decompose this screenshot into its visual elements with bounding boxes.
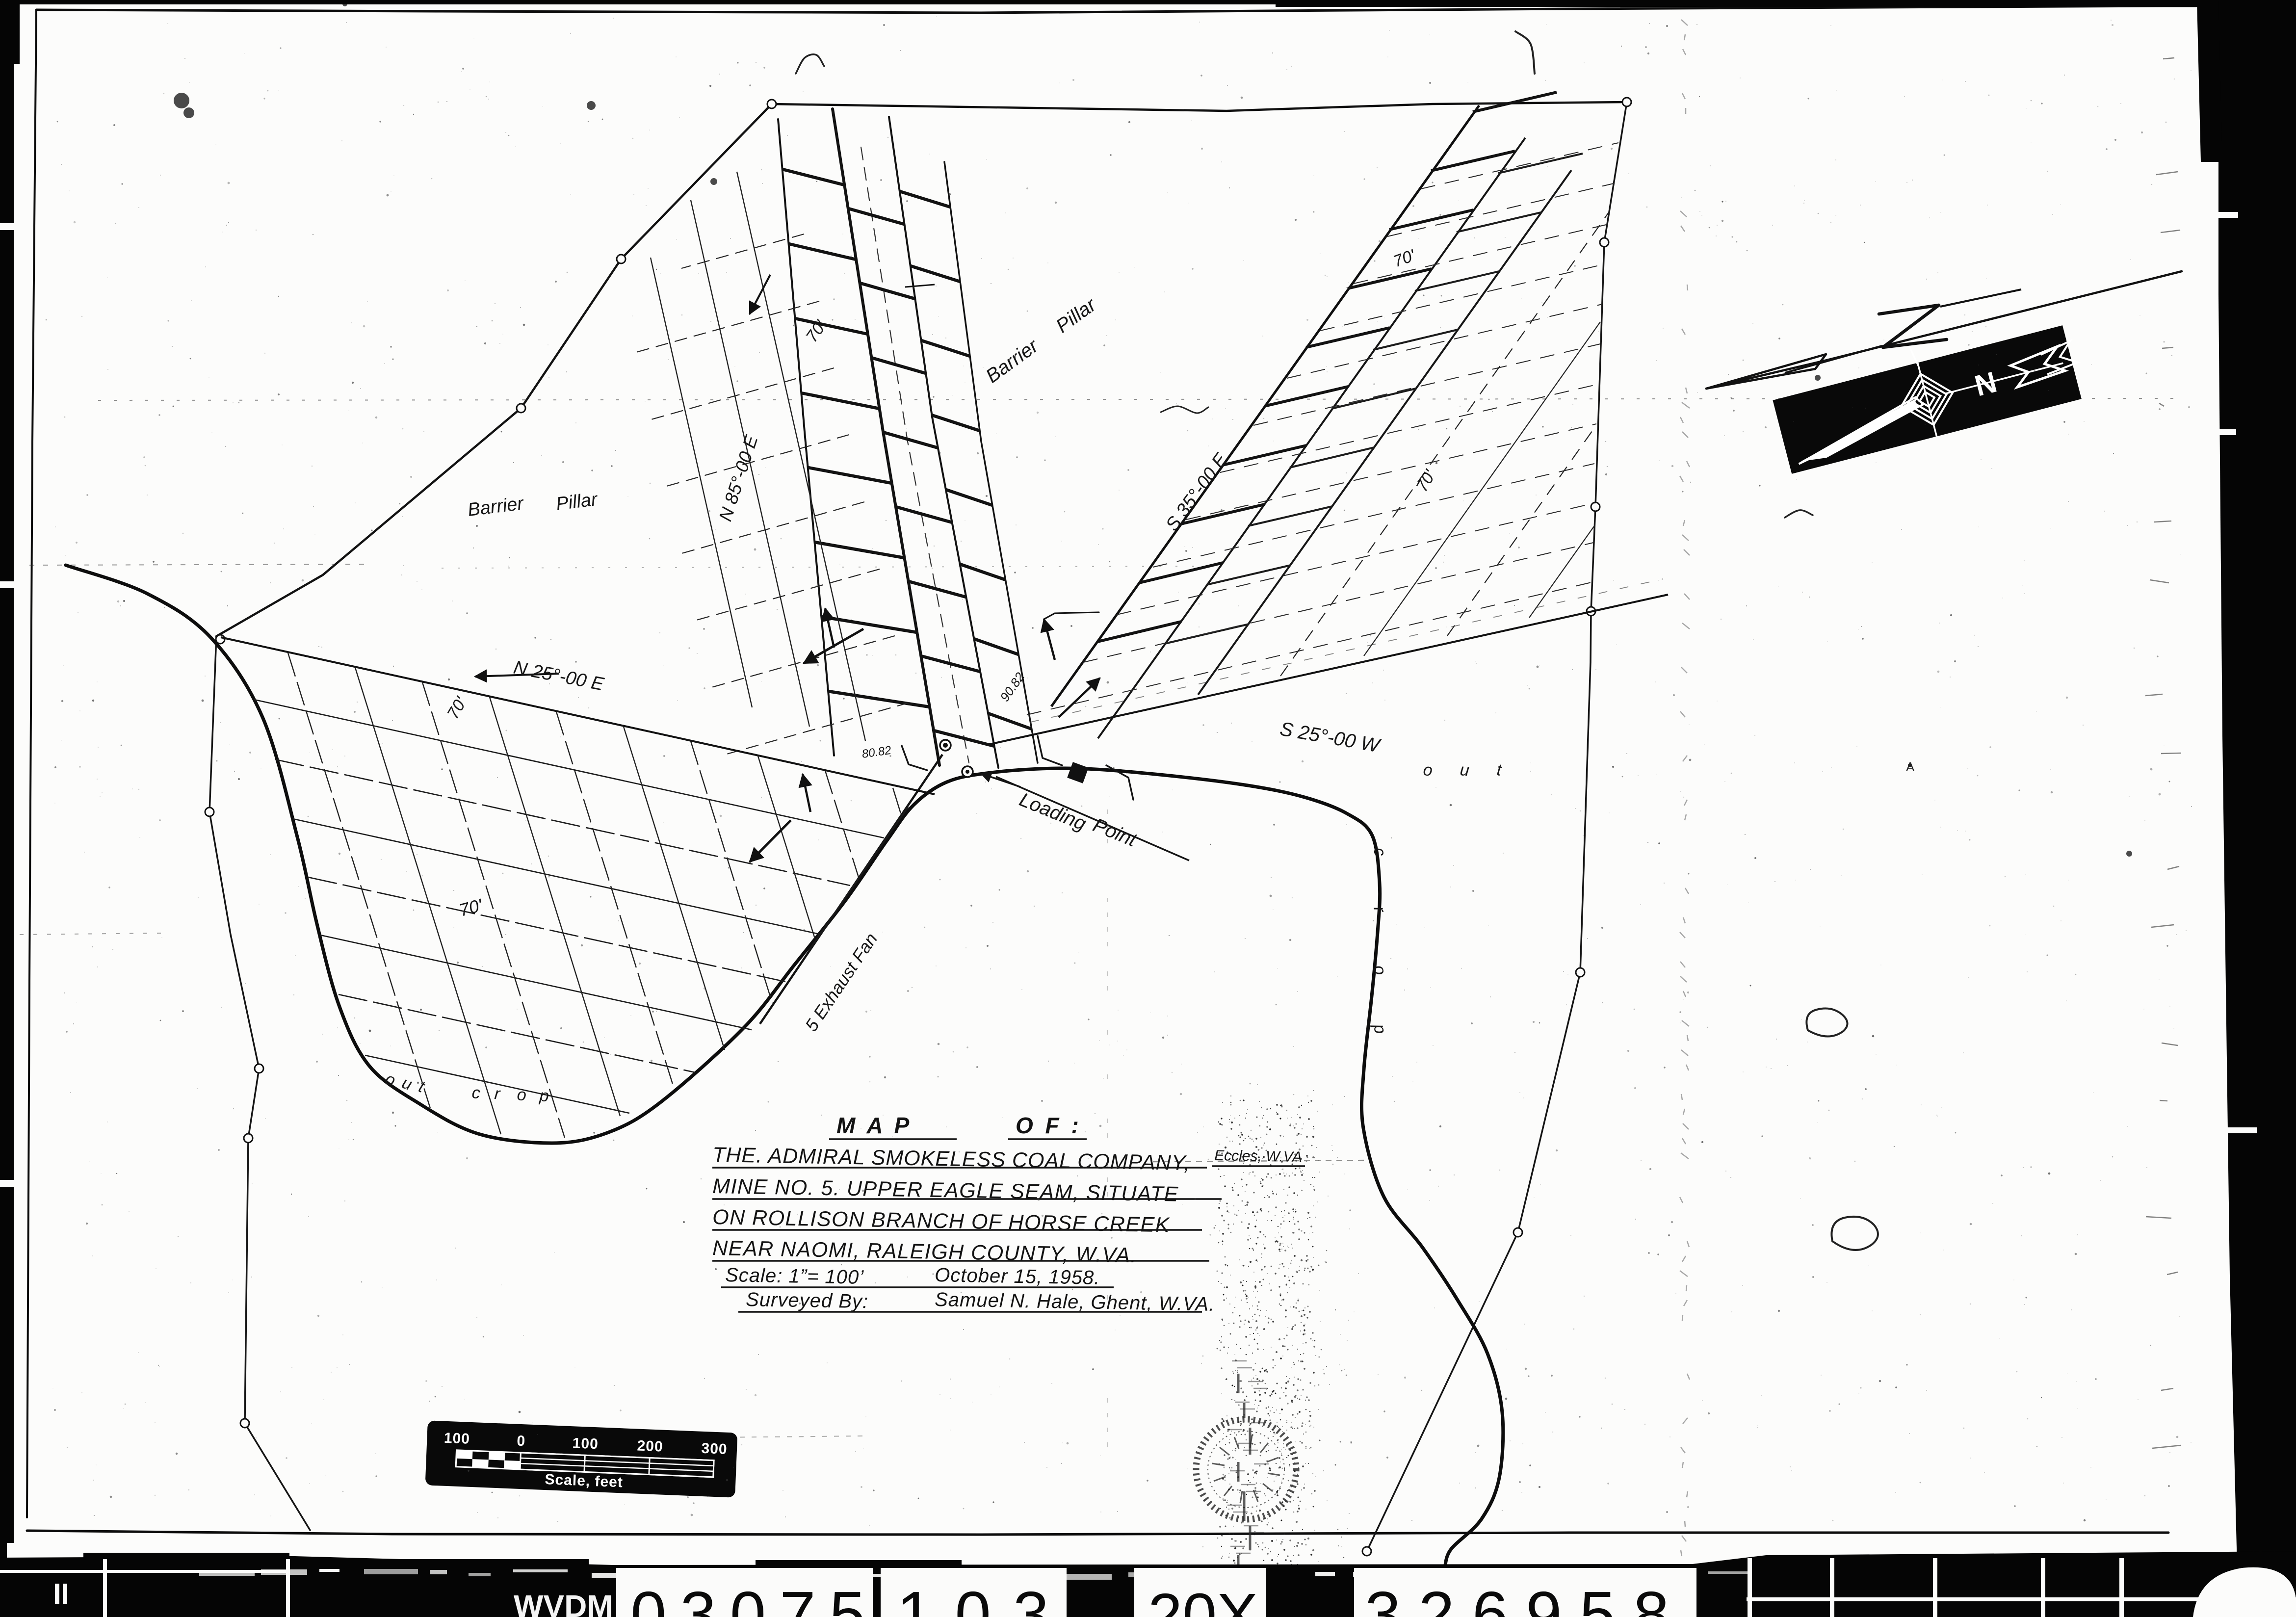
svg-text:O F :: O F :: [1016, 1113, 1082, 1138]
svg-text:100: 100: [572, 1435, 599, 1452]
svg-text:300: 300: [701, 1440, 728, 1458]
svg-text:October 15, 1958.: October 15, 1958.: [935, 1264, 1100, 1289]
svg-text:0: 0: [517, 1433, 526, 1450]
svg-text:326958: 326958: [1365, 1578, 1687, 1617]
svg-text:u: u: [1459, 760, 1470, 780]
svg-text:o: o: [1422, 760, 1433, 780]
svg-text:Scale: 1”= 100’: Scale: 1”= 100’: [725, 1264, 864, 1288]
svg-text:103: 103: [897, 1578, 1071, 1617]
svg-text:100: 100: [444, 1430, 470, 1447]
svg-text:o: o: [516, 1085, 527, 1105]
svg-text:200: 200: [637, 1438, 663, 1455]
svg-text:03075: 03075: [630, 1578, 879, 1617]
svg-text:M A P: M A P: [836, 1113, 912, 1138]
svg-text:c: c: [471, 1083, 481, 1102]
svg-text:A: A: [1906, 759, 1915, 774]
svg-text:WVDM: WVDM: [514, 1589, 613, 1617]
svg-text:Scale, feet: Scale, feet: [545, 1471, 624, 1490]
svg-text:20X: 20X: [1148, 1581, 1258, 1617]
svg-text:Surveyed By:: Surveyed By:: [746, 1289, 869, 1312]
svg-text:p: p: [538, 1086, 549, 1106]
